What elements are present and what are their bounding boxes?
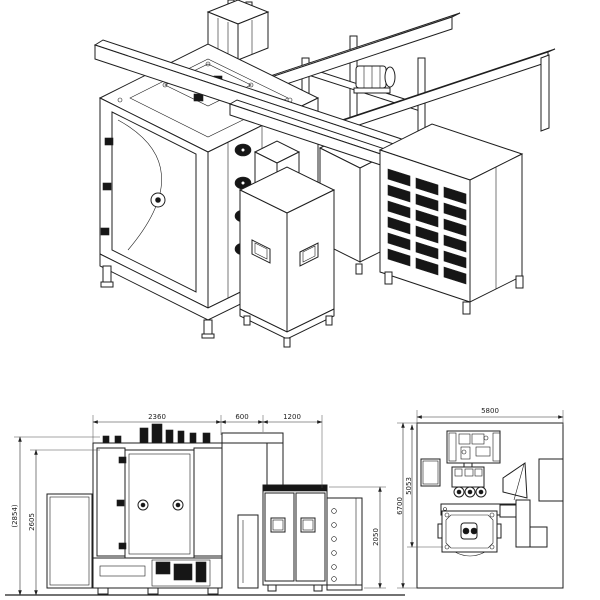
front-control-cabinet <box>263 485 327 591</box>
dim-machine-depth: 5053 <box>405 477 413 495</box>
dim-body-height: 2605 <box>28 513 36 531</box>
front-top-feedthroughs <box>103 424 210 443</box>
dim-cabinet-height: 2050 <box>372 528 380 546</box>
front-base-frame <box>93 558 222 594</box>
motor-icon <box>354 66 395 93</box>
plan-view: 5800 6700 5053 <box>395 390 600 600</box>
iso-electrical-cabinet <box>240 167 334 347</box>
drawing-sheet: (2854) 2605 2360 600 1200 2050 <box>0 0 600 600</box>
front-elevation-view: (2854) 2605 2360 600 1200 2050 <box>0 390 410 600</box>
dim-gap-width: 600 <box>235 413 248 421</box>
front-chamber-door <box>117 450 194 558</box>
dim-chamber-width: 2360 <box>148 413 166 421</box>
front-machine <box>47 424 222 594</box>
front-middle-cabinet <box>238 515 258 588</box>
dim-overall-width: 5800 <box>481 407 499 415</box>
dim-overall-depth: 6700 <box>396 497 404 515</box>
front-power-rack <box>327 498 362 590</box>
isometric-view <box>0 0 600 390</box>
plan-pump-group <box>452 467 486 497</box>
dim-cabinet-width: 1200 <box>283 413 301 421</box>
dim-overall-height: (2854) <box>11 504 19 528</box>
iso-power-rack <box>380 124 523 314</box>
plan-chamber <box>438 511 501 556</box>
front-duct <box>222 433 283 485</box>
plan-loader-assembly <box>447 431 500 469</box>
